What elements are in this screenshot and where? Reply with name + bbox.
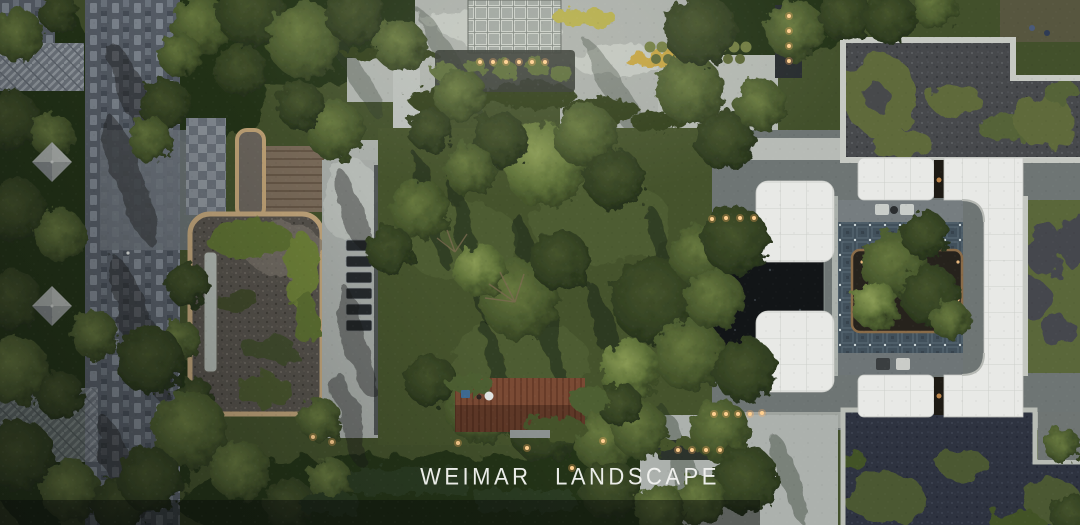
lighting-overlay — [0, 0, 1080, 525]
watermark-logo: WEIMAR LANDSCAPE — [420, 463, 720, 491]
aerial-photo: WEIMAR LANDSCAPE — [0, 0, 1080, 525]
landscape-scene — [0, 0, 1080, 525]
